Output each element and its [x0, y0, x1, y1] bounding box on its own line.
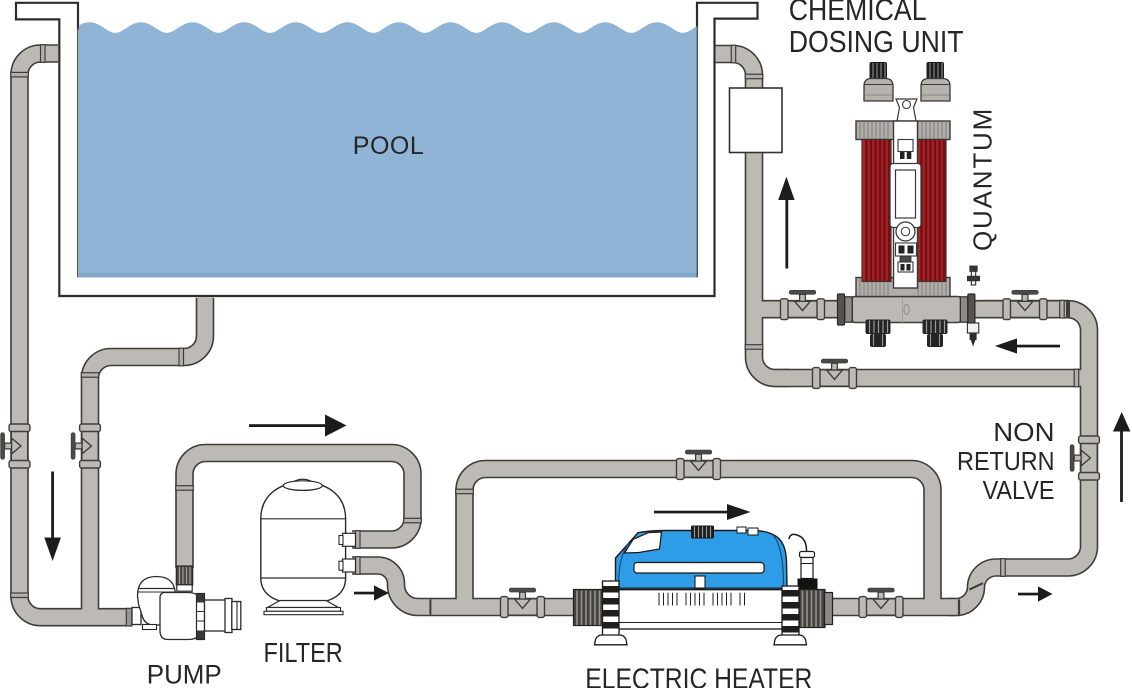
svg-text:RETURN: RETURN: [957, 448, 1054, 476]
svg-text:PUMP: PUMP: [147, 659, 222, 688]
svg-text:DOSING UNIT: DOSING UNIT: [789, 25, 964, 59]
svg-text:NON: NON: [993, 418, 1054, 447]
svg-text:FILTER: FILTER: [264, 638, 343, 668]
svg-text:POOL: POOL: [353, 132, 424, 160]
svg-text:VALVE: VALVE: [983, 477, 1055, 505]
svg-text:QUANTUM: QUANTUM: [968, 107, 998, 251]
svg-text:CHEMICAL: CHEMICAL: [789, 0, 927, 27]
svg-text:ELECTRIC HEATER: ELECTRIC HEATER: [585, 663, 812, 688]
